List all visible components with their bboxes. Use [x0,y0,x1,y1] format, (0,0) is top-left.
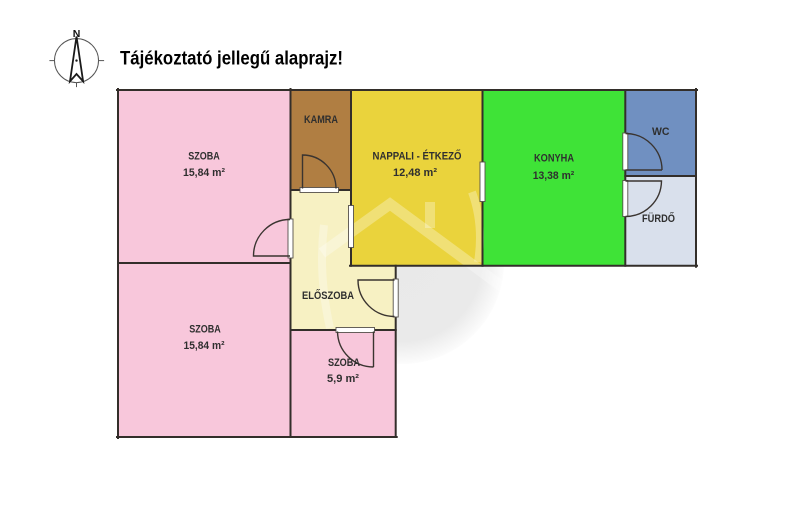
svg-text:KAMRA: KAMRA [304,114,338,126]
svg-text:FÜRDŐ: FÜRDŐ [642,212,675,225]
svg-text:SZOBA: SZOBA [188,151,220,163]
svg-text:SZOBA: SZOBA [189,324,221,336]
svg-text:15,84 m²: 15,84 m² [184,340,225,352]
svg-text:SZOBA: SZOBA [328,357,360,369]
svg-text:KONYHA: KONYHA [534,153,574,165]
svg-text:NAPPALI - ÉTKEZŐ: NAPPALI - ÉTKEZŐ [373,150,462,163]
svg-text:15,84 m²: 15,84 m² [183,167,225,179]
svg-text:ELŐSZOBA: ELŐSZOBA [302,289,354,302]
svg-text:13,38 m²: 13,38 m² [533,170,575,182]
svg-text:N: N [73,28,81,40]
svg-text:5,9 m²: 5,9 m² [327,373,359,385]
svg-text:Tájékoztató jellegű alaprajz!: Tájékoztató jellegű alaprajz! [120,48,343,70]
svg-text:WC: WC [652,126,670,138]
svg-text:12,48 m²: 12,48 m² [393,167,437,179]
